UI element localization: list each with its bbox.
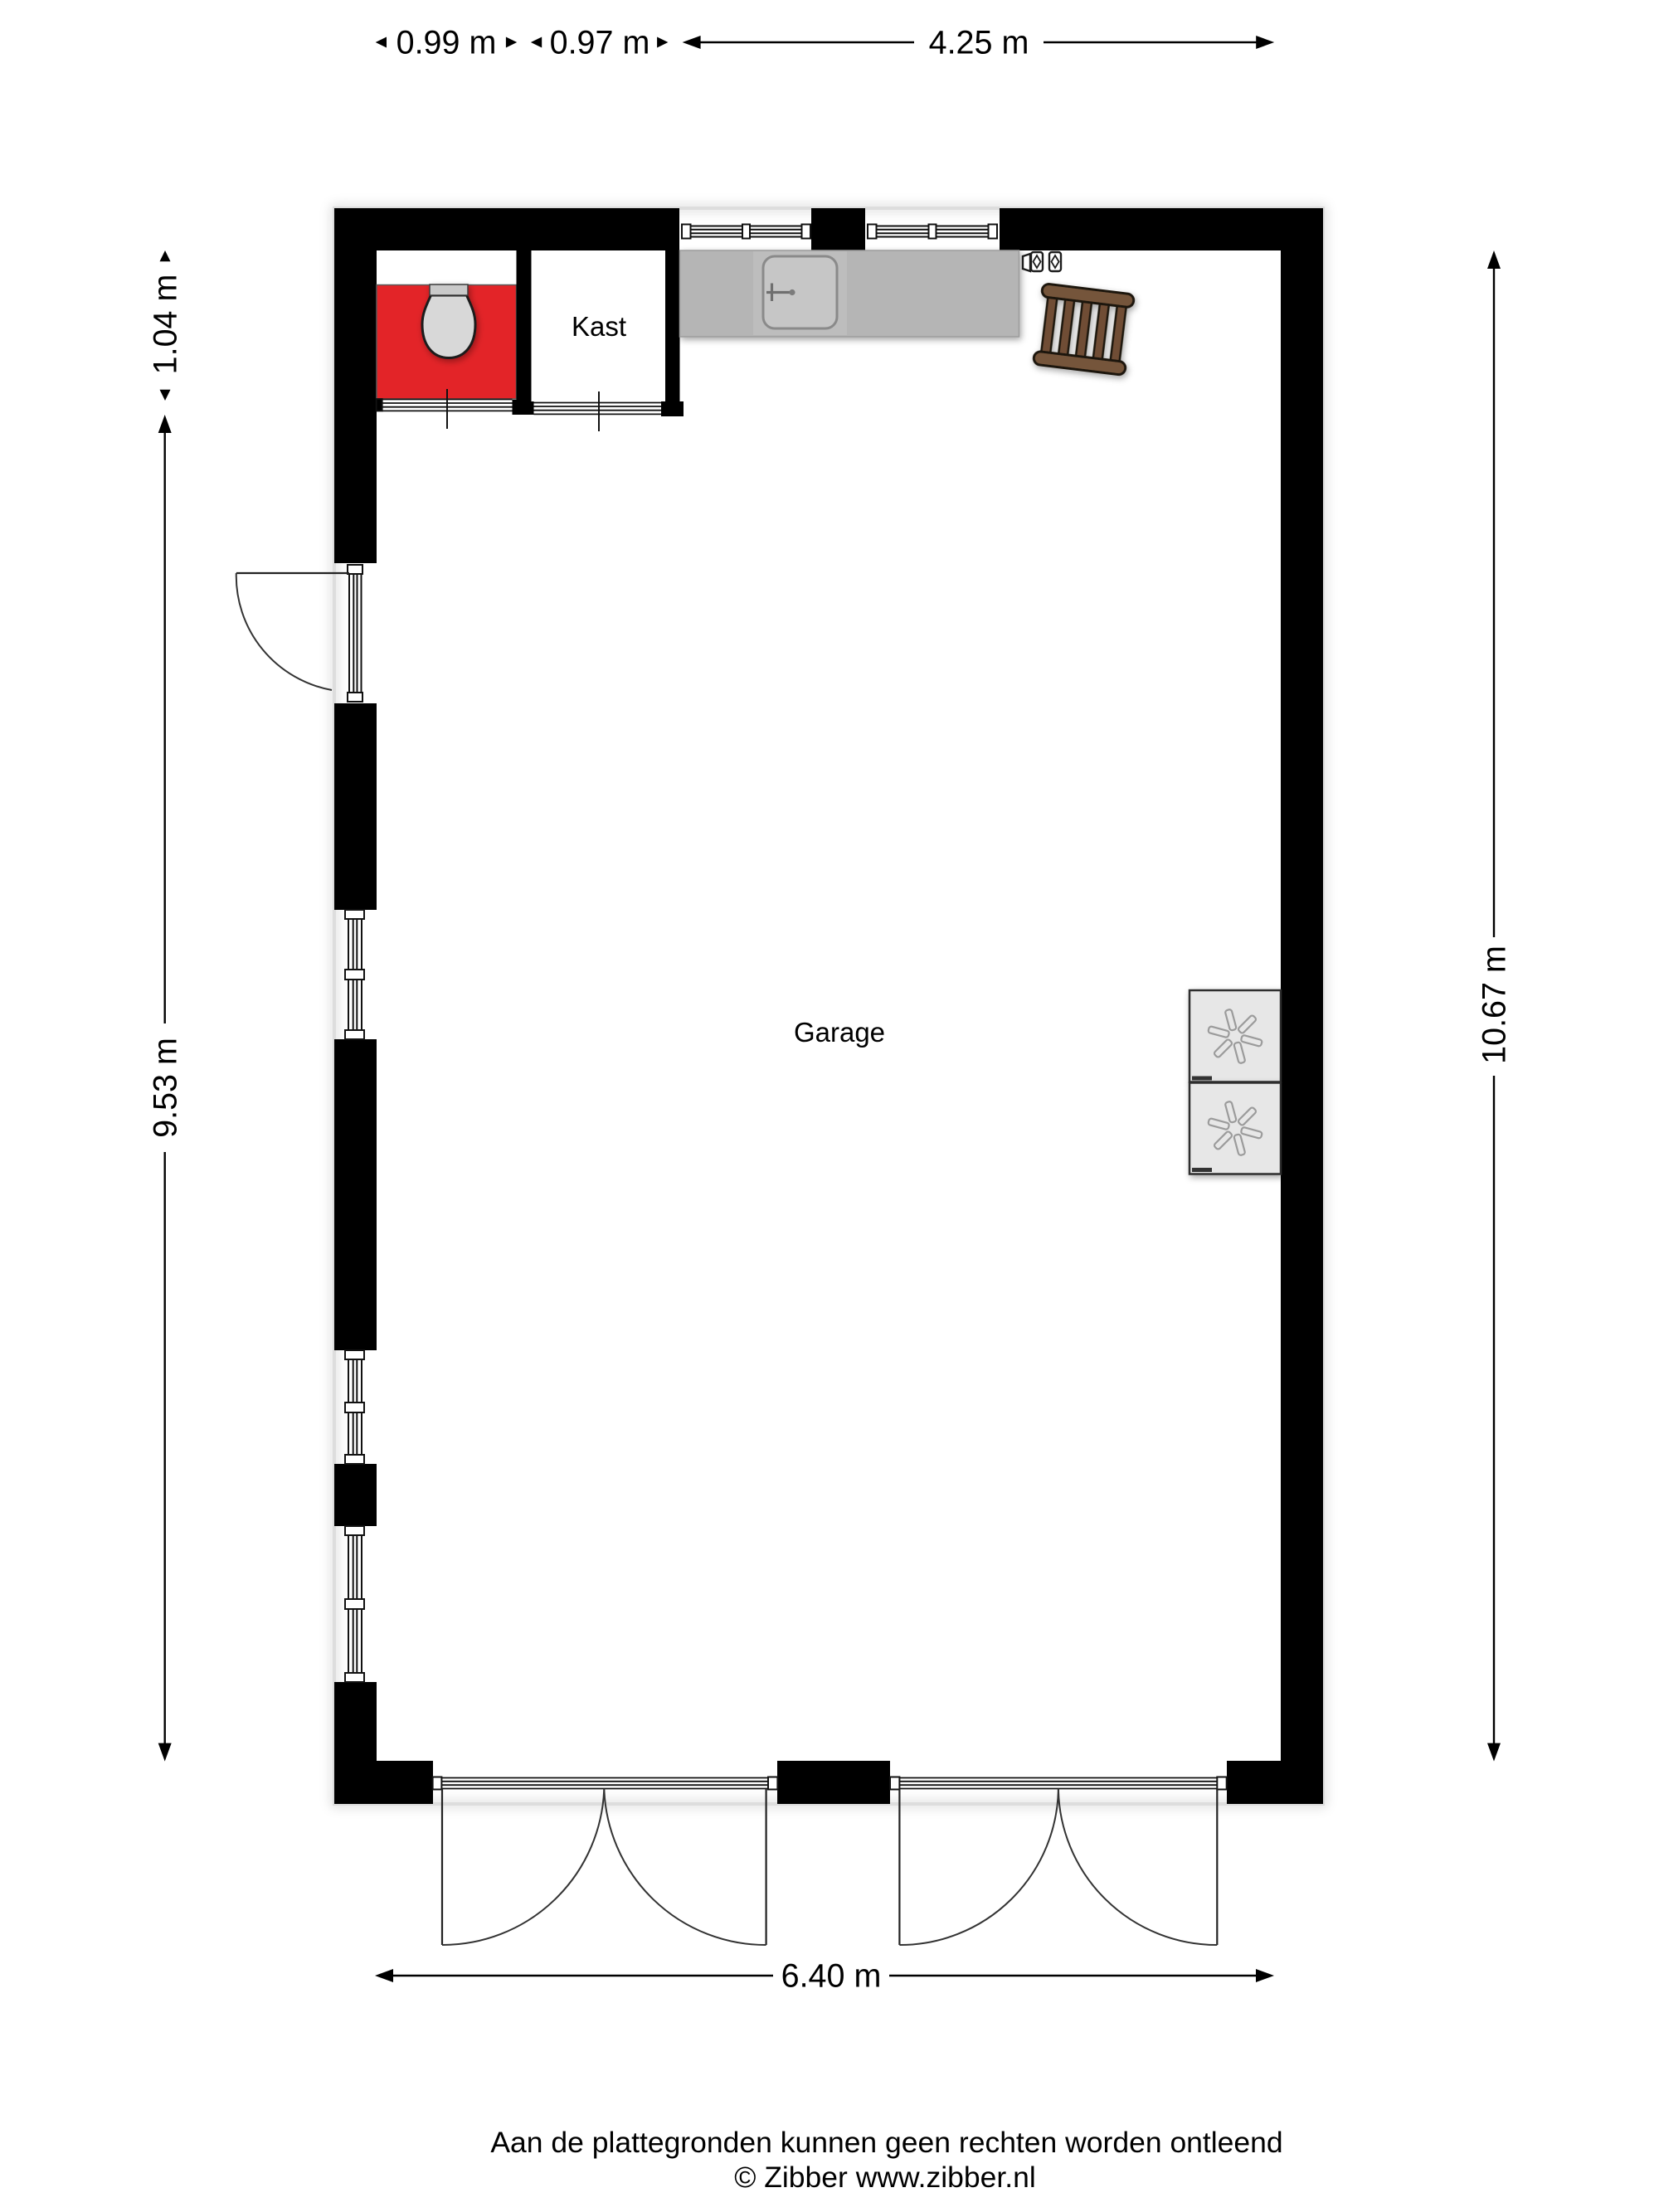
svg-text:1.04 m: 1.04 m bbox=[148, 275, 184, 375]
svg-text:0.97 m: 0.97 m bbox=[550, 25, 650, 61]
svg-text:4.25 m: 4.25 m bbox=[929, 25, 1029, 61]
svg-text:© Zibber www.zibber.nl: © Zibber www.zibber.nl bbox=[734, 2161, 1036, 2194]
svg-text:0.99 m: 0.99 m bbox=[397, 25, 497, 61]
svg-text:Kast: Kast bbox=[572, 311, 626, 342]
svg-text:9.53 m: 9.53 m bbox=[148, 1038, 184, 1138]
svg-text:Aan de plattegronden kunnen ge: Aan de plattegronden kunnen geen rechten… bbox=[490, 2126, 1282, 2159]
svg-text:6.40 m: 6.40 m bbox=[781, 1958, 882, 1995]
svg-text:Garage: Garage bbox=[794, 1017, 885, 1048]
svg-text:10.67 m: 10.67 m bbox=[1477, 946, 1513, 1064]
